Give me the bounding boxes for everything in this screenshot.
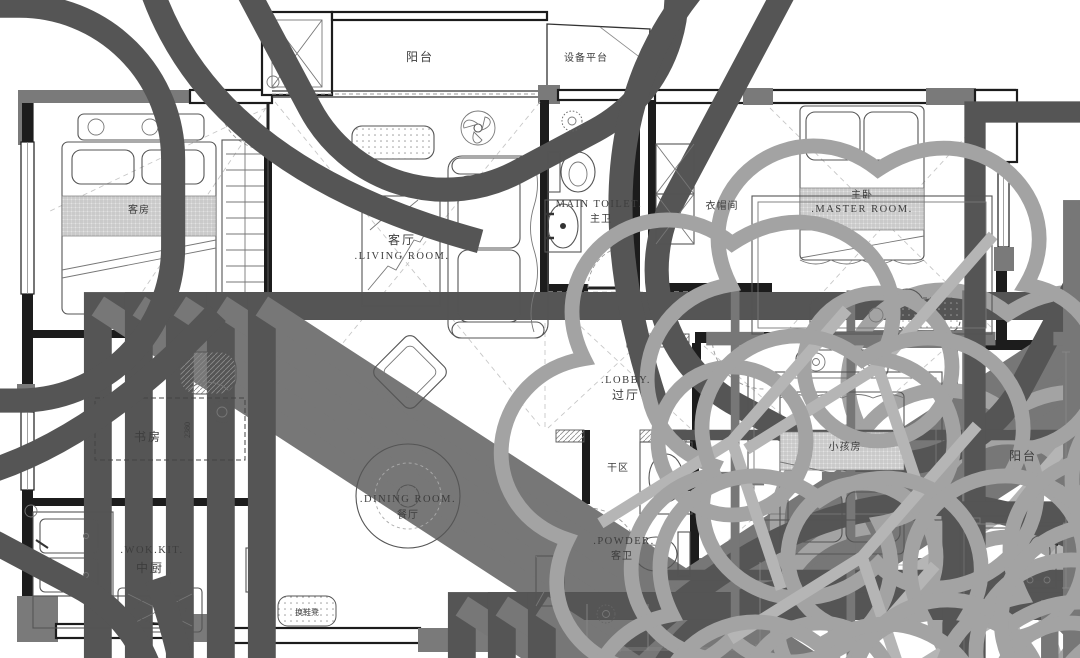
cloakroom-label: 衣帽间 <box>706 199 739 212</box>
main-toilet-label-zh: 主卫 <box>590 213 612 225</box>
balcony-top-label: 阳台 <box>406 49 434 64</box>
lobby-label-en: .LOBBY. <box>601 375 651 386</box>
master-room-label-zh: 主卧 <box>851 188 873 201</box>
main-toilet-label-en: MAIN TOILET. <box>556 199 643 210</box>
wall-master-right-gray <box>994 247 1014 271</box>
study-label: 书房 <box>134 429 162 444</box>
desk-dimension-label: 2380 <box>183 422 192 438</box>
cabinet-dry-hatch1 <box>556 430 584 442</box>
powder-room-label-en: .POWDER. <box>593 536 655 547</box>
balcony-right-label: 阳台 <box>1009 448 1037 463</box>
wok-kitchen-label-en: .WOK.KIT. <box>120 545 183 556</box>
equipment-platform-label: 设备平台 <box>564 51 608 64</box>
master-room-label-en: .MASTER ROOM. <box>811 204 912 215</box>
wall-bl-corner-gray <box>17 596 58 642</box>
floor-plan-canvas: 阳台 设备平台 客房 客厅 .LIVING ROOM. MAIN TOILET.… <box>0 0 1080 658</box>
lobby-label-zh: 过厅 <box>612 388 640 402</box>
powder-room-label-zh: 客卫 <box>611 549 633 562</box>
dry-area-label: 干区 <box>607 462 629 474</box>
wok-kitchen-label-zh: 中厨 <box>136 560 164 575</box>
wall-master-top-gray1 <box>743 88 773 105</box>
window-guest-left <box>21 142 34 294</box>
shoe-bench-label: 换鞋凳 <box>295 607 319 617</box>
ceiling-fan <box>461 111 495 145</box>
kids-room-label: 小孩房 <box>829 440 862 453</box>
toilet-shower <box>562 111 582 131</box>
dining-room-label-en: .DINING ROOM. <box>360 494 456 505</box>
dining-room-label-zh: 餐厅 <box>397 508 419 521</box>
guest-wardrobe <box>222 140 268 310</box>
living-room-label-zh: 客厅 <box>388 232 416 247</box>
guest-room-label: 客房 <box>128 203 150 216</box>
wall-dining-bottom <box>210 628 420 643</box>
wall-balcony-top-rail <box>332 12 547 20</box>
living-room-label-en: .LIVING ROOM. <box>354 251 449 262</box>
floor-plan-drawing: 阳台 设备平台 客房 客厅 .LIVING ROOM. MAIN TOILET.… <box>0 0 1080 658</box>
